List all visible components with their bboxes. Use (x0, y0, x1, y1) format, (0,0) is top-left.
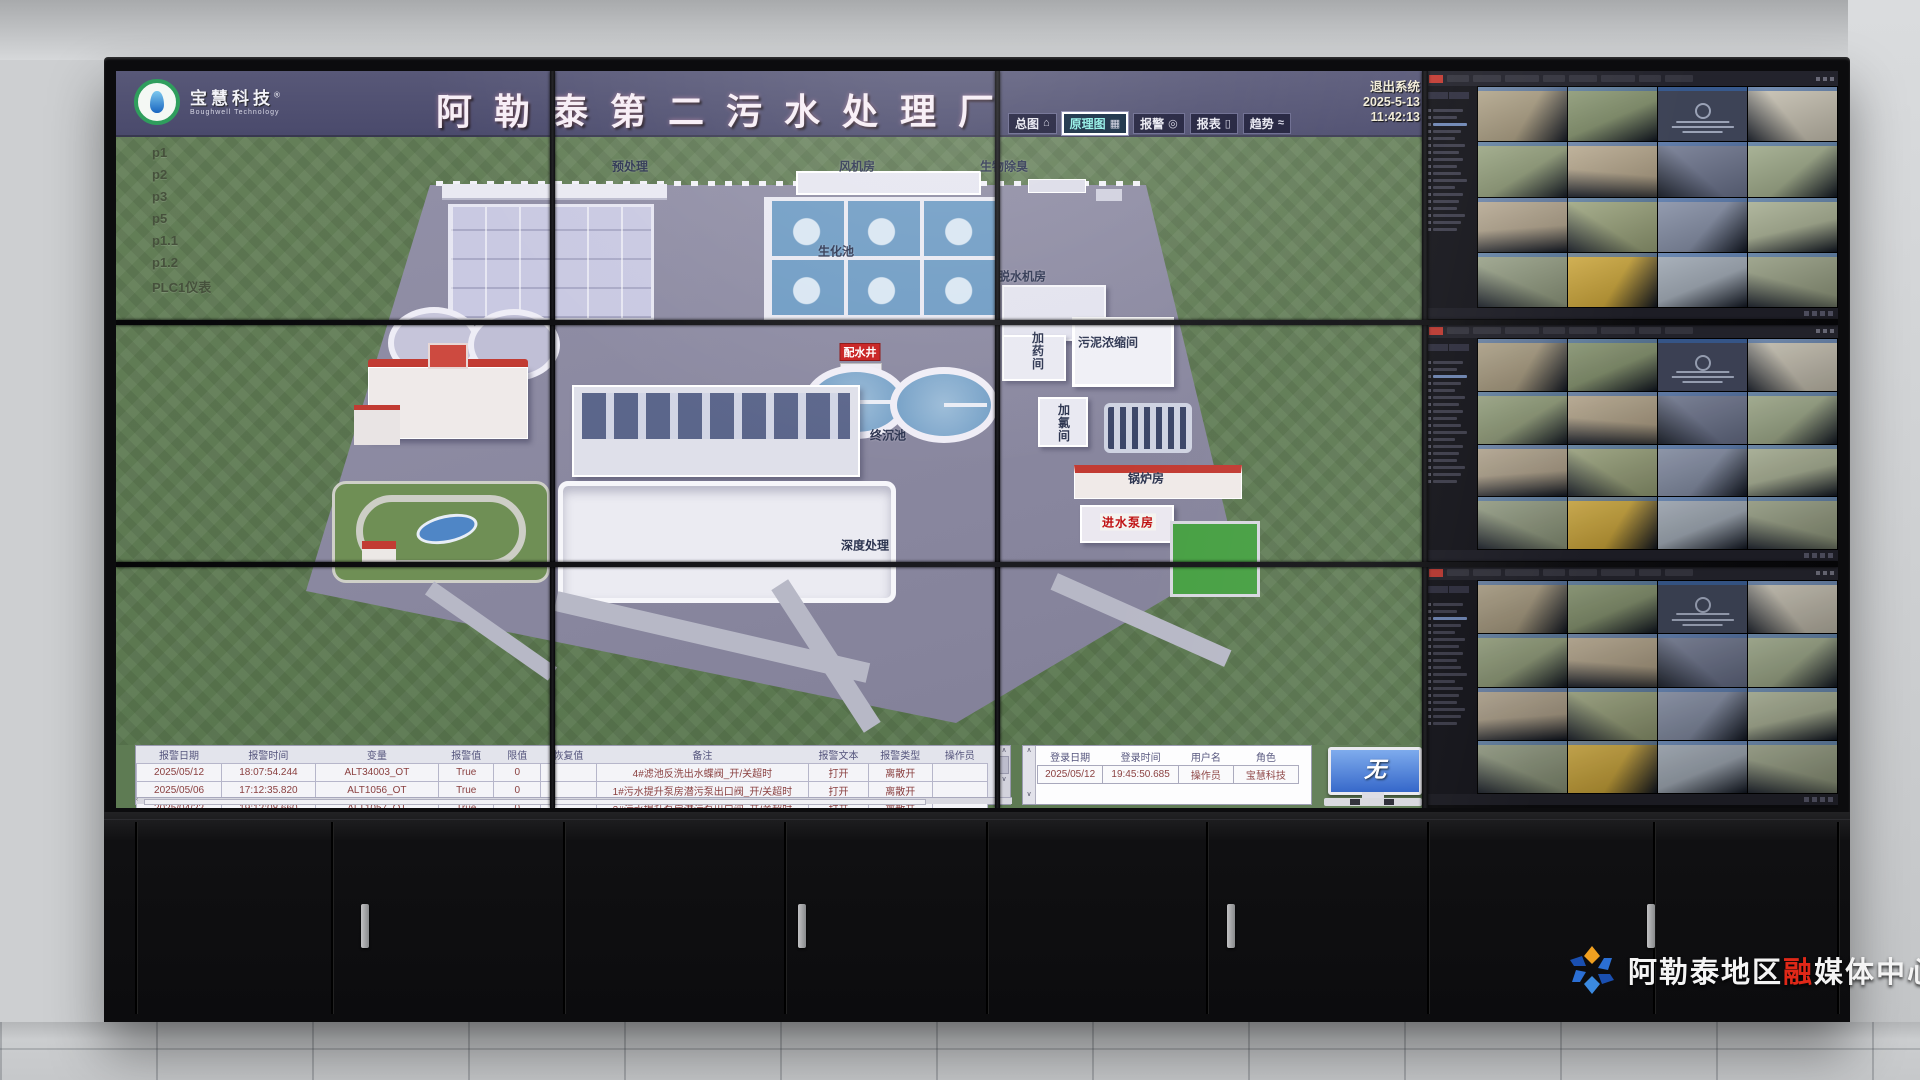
nav-tab-报表[interactable]: 报表▯ (1190, 113, 1238, 134)
camera-icon (1428, 715, 1431, 718)
login-table-panel: ∧∨ 登录日期登录时间用户名角色2025/05/1219:45:50.685操作… (1022, 745, 1312, 805)
camera-name-bar (1433, 638, 1465, 641)
camera-tile[interactable] (1658, 392, 1747, 444)
cabinet-door-gap (1427, 822, 1429, 1014)
camera-icon (1428, 221, 1431, 224)
bezel-vertical-1 (550, 71, 555, 808)
column-header: 报警文本 (809, 746, 869, 764)
camera-tree-item[interactable] (1428, 135, 1474, 142)
camera-tree-item[interactable] (1428, 601, 1474, 608)
camera-tree-item[interactable] (1428, 471, 1474, 478)
report-doc-icon: ▯ (1225, 117, 1231, 130)
vms-status-bar (1425, 550, 1838, 561)
login-table: 登录日期登录时间用户名角色2025/05/1219:45:50.685操作员宝慧… (1037, 748, 1299, 784)
exit-system-button[interactable]: 退出系统 (1326, 80, 1420, 95)
camera-tree-item[interactable] (1428, 163, 1474, 170)
camera-tile[interactable] (1478, 581, 1567, 633)
camera-icon (1428, 116, 1431, 119)
camera-icon (1428, 200, 1431, 203)
vms-body (1425, 86, 1838, 308)
media-center-title: 阿勒泰地区融媒体中心 (1628, 949, 1920, 991)
camera-offline-tile[interactable] (1658, 339, 1747, 391)
camera-tree-item[interactable] (1428, 121, 1474, 128)
camera-name-bar (1433, 382, 1461, 385)
vms-status-bar (1425, 794, 1838, 805)
camera-tile[interactable] (1568, 581, 1657, 633)
window-controls[interactable] (1816, 329, 1834, 333)
camera-tree-item[interactable] (1428, 443, 1474, 450)
camera-tree-item[interactable] (1428, 128, 1474, 135)
home-icon: ⌂ (1043, 117, 1050, 129)
status-bar-icon[interactable] (1828, 553, 1833, 558)
camera-tile[interactable] (1748, 497, 1837, 549)
camera-name-bar (1433, 466, 1465, 469)
camera-tile[interactable] (1568, 198, 1657, 252)
camera-tile[interactable] (1748, 392, 1837, 444)
vms-menu-item[interactable] (1543, 75, 1565, 82)
table-cell: 宝慧科技 (1233, 766, 1298, 784)
table-row[interactable]: 2025/05/1218:07:54.244ALT34003_OTTrue04#… (137, 764, 988, 782)
plc-list-item[interactable]: p2 (152, 167, 211, 189)
vms-menu-item[interactable] (1665, 569, 1693, 576)
camera-tree-item[interactable] (1428, 671, 1474, 678)
camera-tile[interactable] (1568, 392, 1657, 444)
camera-tree-item[interactable] (1428, 457, 1474, 464)
nav-tab-原理图[interactable]: 原理图▦ (1062, 112, 1128, 135)
camera-tree-item[interactable] (1428, 142, 1474, 149)
camera-tile[interactable] (1478, 688, 1567, 740)
tree-tab-button[interactable] (1449, 586, 1469, 593)
registered-mark: ® (274, 91, 280, 100)
column-header: 报警日期 (137, 746, 222, 764)
camera-icon (1428, 666, 1431, 669)
camera-tile[interactable] (1658, 445, 1747, 497)
table-cell (541, 764, 596, 782)
page-title: 阿勒泰第二污水处理厂 (386, 83, 1066, 135)
camera-offline-tile[interactable] (1658, 87, 1747, 141)
column-header: 用户名 (1178, 748, 1233, 766)
camera-name-bar (1433, 687, 1463, 690)
camera-tile[interactable] (1568, 688, 1657, 740)
camera-icon (1428, 603, 1431, 606)
camera-name-bar (1433, 396, 1465, 399)
camera-tile[interactable] (1568, 445, 1657, 497)
status-bar-icon[interactable] (1804, 311, 1809, 316)
camera-tree-item[interactable] (1428, 107, 1474, 114)
camera-tree-item[interactable] (1428, 394, 1474, 401)
camera-tree-item[interactable] (1428, 114, 1474, 121)
cabinet-door-gap (986, 822, 988, 1014)
office-building-wing (354, 405, 400, 445)
floor-tiles (0, 1022, 1920, 1080)
window-control-icon[interactable] (1816, 329, 1820, 333)
building-sludge-thickening (1072, 317, 1174, 387)
vms-menu-item[interactable] (1639, 569, 1661, 576)
vms-menu-item[interactable] (1569, 327, 1597, 334)
camera-tile[interactable] (1478, 339, 1567, 391)
workstation-screen-button[interactable]: 无 (1328, 747, 1422, 795)
column-header: 报警类型 (868, 746, 932, 764)
camera-tile[interactable] (1748, 581, 1837, 633)
camera-tile[interactable] (1748, 445, 1837, 497)
window-control-icon[interactable] (1823, 571, 1827, 575)
vms-menu-item[interactable] (1601, 569, 1635, 576)
camera-tile[interactable] (1748, 634, 1837, 686)
camera-tree-item[interactable] (1428, 657, 1474, 664)
camera-tree-item[interactable] (1428, 608, 1474, 615)
camera-name-bar (1433, 200, 1459, 203)
camera-tile[interactable] (1568, 253, 1657, 307)
office-building-center (428, 343, 468, 369)
camera-icon (1428, 617, 1431, 620)
vms-menu-item[interactable] (1639, 75, 1661, 82)
plant-label: 脱水机房 (998, 268, 1046, 285)
bezel-vertical-3 (1422, 71, 1428, 808)
camera-tile[interactable] (1658, 741, 1747, 793)
status-bar-icon[interactable] (1828, 311, 1833, 316)
camera-tile[interactable] (1568, 741, 1657, 793)
camera-tile[interactable] (1478, 634, 1567, 686)
tree-tab-button[interactable] (1449, 344, 1469, 351)
camera-tree-item[interactable] (1428, 706, 1474, 713)
camera-tree-item[interactable] (1428, 170, 1474, 177)
camera-tree-item[interactable] (1428, 429, 1474, 436)
camera-tile[interactable] (1748, 741, 1837, 793)
camera-icon (1428, 158, 1431, 161)
camera-name-bar (1433, 228, 1457, 231)
camera-grid (1477, 86, 1838, 308)
camera-tree-item[interactable] (1428, 685, 1474, 692)
camera-tree-item[interactable] (1428, 366, 1474, 373)
vms-menu-item[interactable] (1665, 75, 1693, 82)
vms-menu-item[interactable] (1601, 75, 1635, 82)
camera-tree-item[interactable] (1428, 184, 1474, 191)
nav-bar: 总图⌂原理图▦报警◎报表▯趋势≈ (1008, 113, 1291, 133)
control-room-scene: 预处理风机房生物除臭生化池脱水机房加药间污泥浓缩间加氯间配水井终沉池锅炉房进水泵… (0, 0, 1920, 1080)
camera-icon (1428, 123, 1431, 126)
table-cell (932, 764, 987, 782)
camera-name-bar (1433, 389, 1455, 392)
vms-menu-item[interactable] (1505, 569, 1539, 576)
camera-icon (1428, 179, 1431, 182)
diagram-grid-icon: ▦ (1110, 117, 1120, 130)
vms-logo-icon (1429, 75, 1443, 83)
status-bar-icon[interactable] (1804, 553, 1809, 558)
camera-name-bar (1433, 708, 1465, 711)
camera-name-bar (1433, 480, 1457, 483)
vms-menu-item[interactable] (1569, 75, 1597, 82)
camera-tile[interactable] (1748, 142, 1837, 196)
camera-name-bar (1433, 179, 1467, 182)
camera-tree-item[interactable] (1428, 615, 1474, 622)
camera-name-bar (1433, 109, 1463, 112)
camera-tile[interactable] (1658, 142, 1747, 196)
camera-tile[interactable] (1748, 688, 1837, 740)
camera-name-bar (1433, 624, 1461, 627)
plant-label: 生物除臭 (980, 158, 1028, 175)
camera-tree-item[interactable] (1428, 622, 1474, 629)
status-bar-icon[interactable] (1820, 797, 1825, 802)
nav-tab-报警[interactable]: 报警◎ (1133, 113, 1185, 134)
vms-toolbar (1425, 71, 1838, 86)
table-cell: 打开 (809, 764, 869, 782)
camera-tile[interactable] (1658, 253, 1747, 307)
camera-icon (1428, 466, 1431, 469)
camera-tree-item[interactable] (1428, 149, 1474, 156)
status-bar-icon[interactable] (1820, 311, 1825, 316)
column-header: 登录日期 (1038, 748, 1103, 766)
camera-tree-item[interactable] (1428, 156, 1474, 163)
camera-icon (1428, 701, 1431, 704)
nav-tab-label: 报表 (1197, 115, 1221, 132)
column-header: 限值 (494, 746, 541, 764)
vms-menu-item[interactable] (1473, 327, 1501, 334)
alarm-horizontal-scrollbar[interactable]: ‹ (136, 797, 1012, 804)
camera-tile[interactable] (1748, 339, 1837, 391)
login-scrollbar[interactable]: ∧∨ (1023, 746, 1036, 804)
camera-tree-item[interactable] (1428, 713, 1474, 720)
vms-menu-item[interactable] (1447, 75, 1469, 82)
camera-icon (1428, 389, 1431, 392)
room-wall (1848, 0, 1920, 1080)
camera-name-bar (1433, 403, 1459, 406)
camera-tile[interactable] (1478, 445, 1567, 497)
tree-tab-button[interactable] (1428, 586, 1448, 593)
floor-grout-line (0, 1048, 1920, 1050)
plc-list-item[interactable]: p3 (152, 189, 211, 211)
camera-tile[interactable] (1478, 87, 1567, 141)
window-control-icon[interactable] (1830, 571, 1834, 575)
table-cell: 18:07:54.244 (222, 764, 316, 782)
column-header: 角色 (1233, 748, 1298, 766)
camera-name-bar (1433, 694, 1459, 697)
camera-tree-item[interactable] (1428, 643, 1474, 650)
offline-logo-icon (1695, 597, 1711, 613)
camera-name-bar (1433, 459, 1457, 462)
camera-tile[interactable] (1658, 497, 1747, 549)
camera-tree-item[interactable] (1428, 226, 1474, 233)
table-row[interactable]: 2025/05/1219:45:50.685操作员宝慧科技 (1038, 766, 1299, 784)
table-head: 报警日期报警时间变量报警值限值恢复值备注报警文本报警类型操作员 (137, 746, 988, 764)
alarm-table-panel: 报警日期报警时间变量报警值限值恢复值备注报警文本报警类型操作员2025/05/1… (135, 745, 1011, 805)
camera-tree-item[interactable] (1428, 720, 1474, 727)
tree-tab-button[interactable] (1449, 92, 1469, 99)
vms-menu-item[interactable] (1665, 327, 1693, 334)
camera-icon (1428, 207, 1431, 210)
camera-tile[interactable] (1568, 142, 1657, 196)
media-center-logo-icon (1566, 944, 1618, 996)
window-control-icon[interactable] (1830, 77, 1834, 81)
window-control-icon[interactable] (1830, 329, 1834, 333)
camera-tile[interactable] (1658, 688, 1747, 740)
vms-menu-item[interactable] (1505, 327, 1539, 334)
camera-tile[interactable] (1478, 142, 1567, 196)
vms-camera-tree (1425, 86, 1477, 308)
camera-tree-item[interactable] (1428, 629, 1474, 636)
camera-tree-item[interactable] (1428, 415, 1474, 422)
status-bar-icon[interactable] (1812, 797, 1817, 802)
camera-tree-item[interactable] (1428, 198, 1474, 205)
vms-menu-item[interactable] (1473, 75, 1501, 82)
camera-tree-item[interactable] (1428, 650, 1474, 657)
camera-tile[interactable] (1478, 497, 1567, 549)
vms-logo-icon (1429, 569, 1443, 577)
vms-menu-item[interactable] (1543, 569, 1565, 576)
camera-icon (1428, 424, 1431, 427)
bezel-horizontal-1 (116, 320, 1838, 325)
status-bar-icon[interactable] (1804, 797, 1809, 802)
camera-name-bar (1433, 645, 1459, 648)
camera-tree-item[interactable] (1428, 387, 1474, 394)
camera-tile[interactable] (1658, 634, 1747, 686)
workstation-widget: 无 (1320, 745, 1425, 807)
table-cell: 离散开 (868, 764, 932, 782)
camera-tree-item[interactable] (1428, 380, 1474, 387)
column-header: 备注 (596, 746, 809, 764)
offline-text-line (1682, 131, 1723, 133)
camera-tree-item[interactable] (1428, 678, 1474, 685)
camera-tile[interactable] (1658, 198, 1747, 252)
table-cell: True (439, 764, 494, 782)
camera-tree-item[interactable] (1428, 359, 1474, 366)
plc-list-item[interactable]: p1.1 (152, 233, 211, 255)
nav-tab-label: 总图 (1015, 115, 1039, 132)
cabinet-door-gap (784, 822, 786, 1014)
cabinet-handle (1647, 904, 1655, 948)
vms-menu-item[interactable] (1505, 75, 1539, 82)
window-controls[interactable] (1816, 571, 1834, 575)
camera-tree-item[interactable] (1428, 464, 1474, 471)
offline-text-line (1671, 619, 1733, 621)
camera-icon (1428, 445, 1431, 448)
window-control-icon[interactable] (1816, 77, 1820, 81)
vms-toolbar (1425, 565, 1838, 580)
cabinet-door-gap (563, 822, 565, 1014)
status-bar-icon[interactable] (1828, 797, 1833, 802)
camera-name-bar (1433, 666, 1461, 669)
final-clarifier-2 (890, 367, 998, 443)
camera-tree-item[interactable] (1428, 436, 1474, 443)
camera-tile[interactable] (1748, 253, 1837, 307)
vms-menu-item[interactable] (1639, 327, 1661, 334)
camera-tile[interactable] (1748, 198, 1837, 252)
offline-text-line (1682, 381, 1723, 383)
vms-menu-item[interactable] (1569, 569, 1597, 576)
camera-tile[interactable] (1478, 198, 1567, 252)
company-branding: 宝慧科技® Boughwell Technology (190, 84, 280, 116)
workstation-screen-text: 无 (1331, 750, 1419, 790)
plc-list-item[interactable]: p1.2 (152, 255, 211, 277)
tree-tab-button[interactable] (1428, 344, 1448, 351)
camera-grid (1477, 338, 1838, 550)
camera-tree-item[interactable] (1428, 191, 1474, 198)
camera-name-bar (1433, 445, 1463, 448)
vms-menu-item[interactable] (1447, 569, 1469, 576)
camera-tree-item[interactable] (1428, 699, 1474, 706)
camera-name-bar (1433, 722, 1457, 725)
plc-list-item[interactable]: p1 (152, 145, 211, 167)
camera-tree-item[interactable] (1428, 401, 1474, 408)
camera-tile[interactable] (1478, 253, 1567, 307)
vms-menu-item[interactable] (1601, 327, 1635, 334)
nav-tab-总图[interactable]: 总图⌂ (1008, 113, 1057, 134)
vms-menu-item[interactable] (1543, 327, 1565, 334)
camera-tree-item[interactable] (1428, 408, 1474, 415)
camera-tree-item[interactable] (1428, 212, 1474, 219)
camera-tree-item[interactable] (1428, 373, 1474, 380)
window-control-icon[interactable] (1823, 329, 1827, 333)
vms-camera-tree (1425, 580, 1477, 794)
status-bar-icon[interactable] (1812, 553, 1817, 558)
camera-tree-item[interactable] (1428, 692, 1474, 699)
camera-name-bar (1433, 144, 1465, 147)
plant-label: 深度处理 (841, 537, 889, 554)
scada-header: 宝慧科技® Boughwell Technology 阿勒泰第二污水处理厂 总图… (116, 71, 1425, 137)
camera-tree-item[interactable] (1428, 664, 1474, 671)
header-row: 登录日期登录时间用户名角色 (1038, 748, 1299, 766)
gate-house-roof (362, 541, 396, 549)
cctv-monitor (1425, 323, 1838, 561)
camera-name-bar (1433, 424, 1461, 427)
building-blower-room (796, 171, 981, 195)
camera-icon (1428, 631, 1431, 634)
plant-label: 加药间 (1030, 332, 1047, 371)
camera-tile[interactable] (1568, 497, 1657, 549)
camera-tile[interactable] (1748, 87, 1837, 141)
camera-tile[interactable] (1478, 741, 1567, 793)
company-subtitle: Boughwell Technology (190, 109, 280, 116)
camera-icon (1428, 228, 1431, 231)
camera-tile[interactable] (1478, 392, 1567, 444)
window-control-icon[interactable] (1816, 571, 1820, 575)
camera-tree-item[interactable] (1428, 478, 1474, 485)
camera-tree-item[interactable] (1428, 219, 1474, 226)
camera-tile[interactable] (1568, 87, 1657, 141)
nav-tab-趋势[interactable]: 趋势≈ (1243, 113, 1291, 134)
camera-name-bar (1433, 438, 1455, 441)
offline-text-line (1676, 371, 1729, 373)
bezel-vertical-2 (995, 71, 1000, 808)
plc-list-item[interactable]: PLC1仪表 (152, 277, 211, 299)
vms-menu-item[interactable] (1473, 569, 1501, 576)
vms-menu-item[interactable] (1447, 327, 1469, 334)
camera-name-bar (1433, 603, 1463, 606)
camera-tile[interactable] (1568, 339, 1657, 391)
camera-name-bar (1433, 361, 1463, 364)
plc-list-item[interactable]: p5 (152, 211, 211, 233)
video-wall-screens: 预处理风机房生物除臭生化池脱水机房加药间污泥浓缩间加氯间配水井终沉池锅炉房进水泵… (116, 71, 1838, 808)
camera-name-bar (1433, 631, 1455, 634)
cctv-monitor-column (1425, 71, 1838, 808)
header-row: 报警日期报警时间变量报警值限值恢复值备注报警文本报警类型操作员 (137, 746, 988, 764)
status-bar-icon[interactable] (1820, 553, 1825, 558)
camera-tree-item[interactable] (1428, 177, 1474, 184)
tree-tab-button[interactable] (1428, 92, 1448, 99)
ceiling (0, 0, 1920, 60)
status-bar-icon[interactable] (1812, 311, 1817, 316)
camera-tree-item[interactable] (1428, 636, 1474, 643)
camera-offline-tile[interactable] (1658, 581, 1747, 633)
camera-tree-item[interactable] (1428, 205, 1474, 212)
workstation-keyboard (1324, 798, 1422, 806)
plant-label: 进水泵房 (1100, 514, 1156, 531)
camera-icon (1428, 368, 1431, 371)
window-controls[interactable] (1816, 77, 1834, 81)
camera-tree-item[interactable] (1428, 422, 1474, 429)
window-control-icon[interactable] (1823, 77, 1827, 81)
camera-tree-item[interactable] (1428, 450, 1474, 457)
camera-tile[interactable] (1568, 634, 1657, 686)
